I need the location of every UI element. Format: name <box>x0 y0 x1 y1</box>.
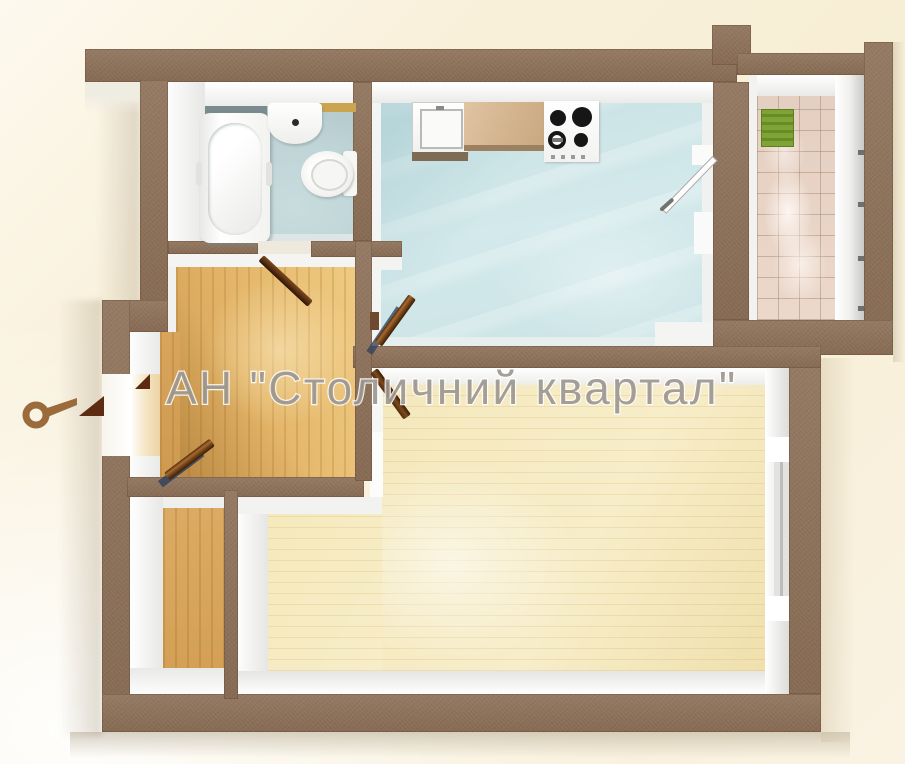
svg-text:АН "Столичний квартал": АН "Столичний квартал" <box>166 362 738 414</box>
